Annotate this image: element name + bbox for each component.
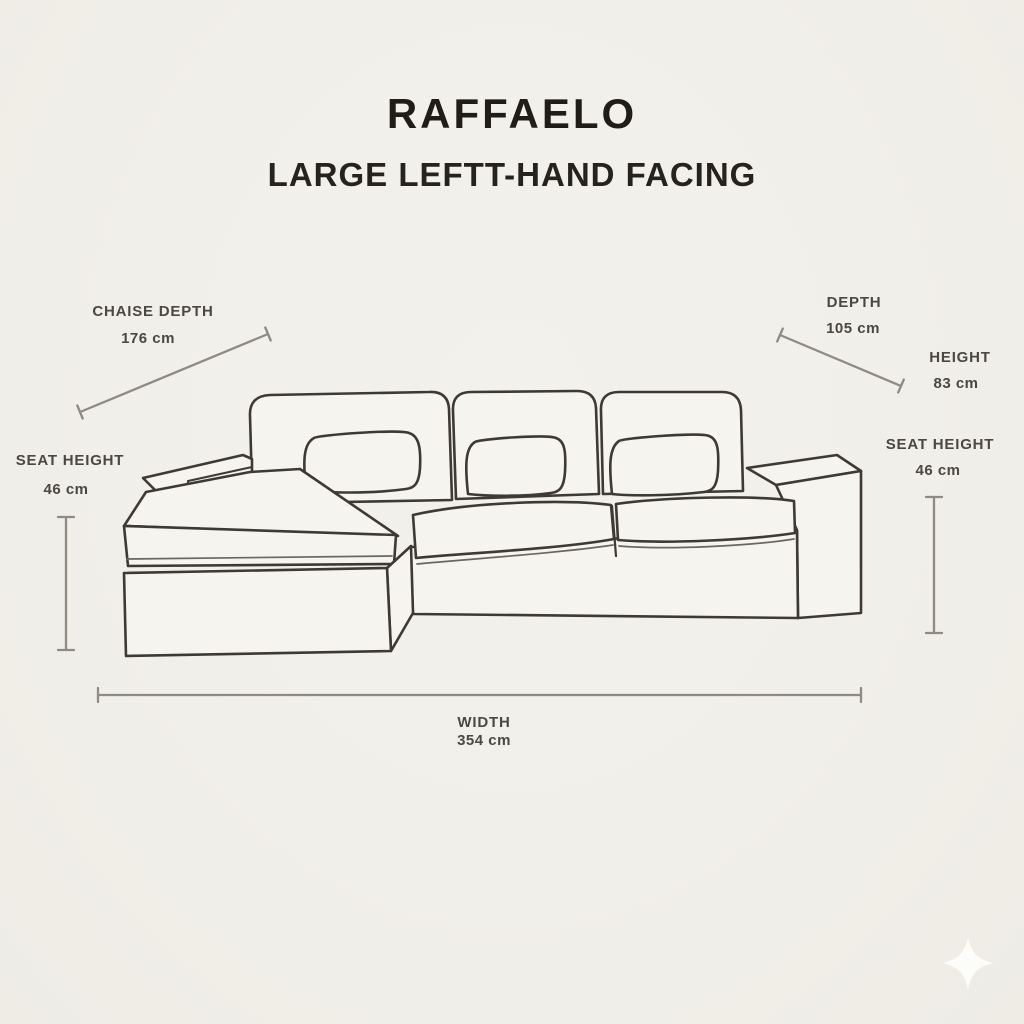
chaise-depth-value: 176 cm xyxy=(121,330,175,347)
height-value: 83 cm xyxy=(933,375,978,392)
chaise-base-front xyxy=(124,568,391,656)
spec-sheet: RAFFAELO LARGE LEFTT-HAND FACING xyxy=(0,0,1024,1024)
sparkle-icon xyxy=(943,937,993,990)
width-value: 354 cm xyxy=(457,732,511,749)
seat-height-left-value: 46 cm xyxy=(43,481,88,498)
seat-height-right-line xyxy=(926,497,942,633)
depth-value: 105 cm xyxy=(826,320,880,337)
seat-height-left-line xyxy=(58,517,74,650)
seat-height-left-label: SEAT HEIGHT xyxy=(16,452,125,469)
lumbar-pillow-right xyxy=(610,435,718,496)
sofa-line-drawing xyxy=(124,391,861,656)
seat-height-right-value: 46 cm xyxy=(915,462,960,479)
width-line xyxy=(98,688,861,702)
width-label: WIDTH xyxy=(457,714,510,731)
sofa-diagram-canvas xyxy=(0,0,1024,1024)
seat-height-right-label: SEAT HEIGHT xyxy=(886,436,995,453)
height-label: HEIGHT xyxy=(929,349,990,366)
chaise-depth-label: CHAISE DEPTH xyxy=(92,303,213,320)
depth-line xyxy=(777,329,904,393)
depth-label: DEPTH xyxy=(827,294,882,311)
lumbar-pillow-middle xyxy=(466,437,565,496)
seat-cushion-right xyxy=(616,497,795,541)
